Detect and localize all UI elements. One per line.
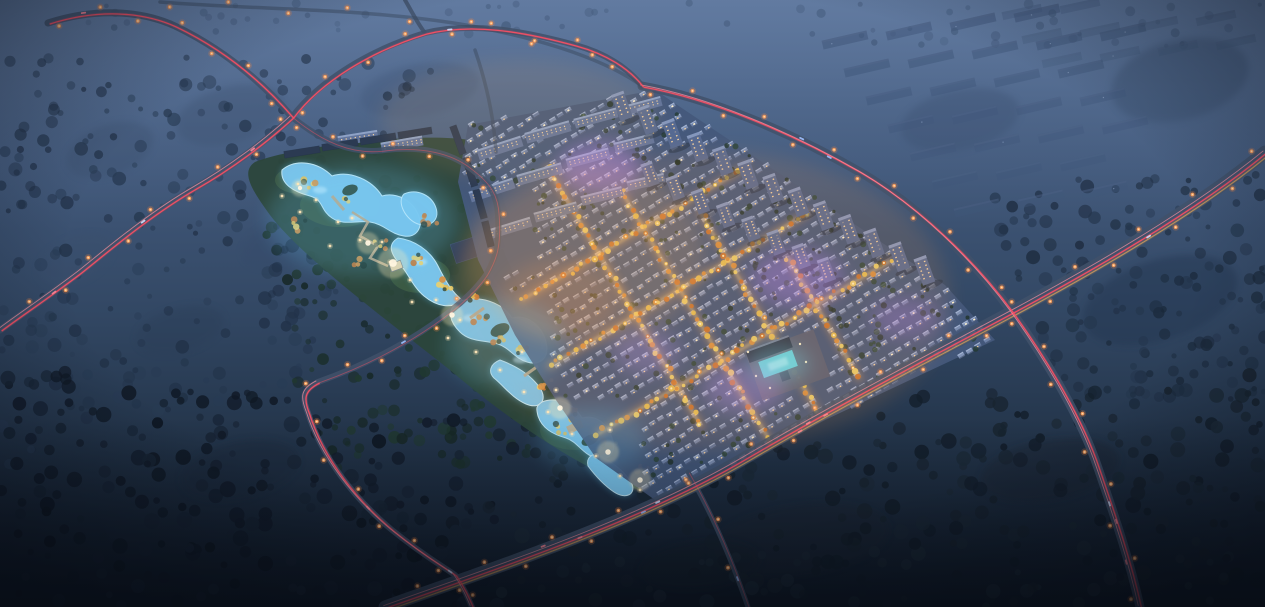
scene-svg	[0, 0, 1265, 607]
aerial-night-render	[0, 0, 1265, 607]
vignette	[0, 0, 1265, 607]
